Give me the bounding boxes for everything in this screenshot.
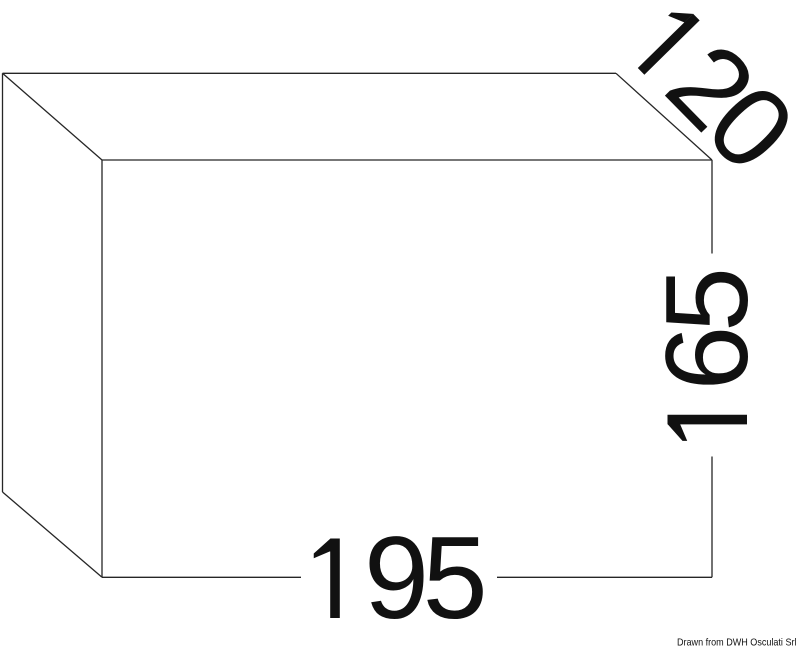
svg-text:Drawn from DWH Osculati Srl: Drawn from DWH Osculati Srl: [677, 638, 797, 647]
svg-text:65: 65: [641, 271, 772, 391]
svg-text:95: 95: [364, 512, 484, 643]
